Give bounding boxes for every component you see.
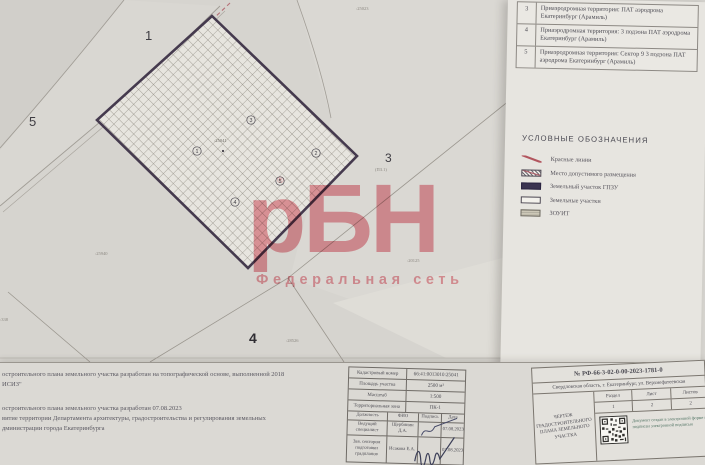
note-line: витие территории Департамента архитектур… (2, 414, 344, 424)
cadastral-label: (ПЗ.1) (375, 167, 387, 172)
region-number: 3 (385, 151, 392, 165)
zouit-box-icon (520, 210, 540, 217)
drawing-title-cell: ЧЕРТЕЖ ГРАДОСТРОИТЕЛЬНОГО ПЛАНА ЗЕМЕЛЬНО… (533, 392, 597, 464)
table-row: 3 Приаэродромная территория: ПАТ аэродро… (517, 2, 697, 27)
map-drawing: 1 5 3 4 3 1 2 5 4 :25041 :25023 (ПЗ.1) :… (0, 0, 510, 362)
red-line-icon (522, 156, 542, 163)
note-line: дминистрации города Екатеринбурга (2, 424, 344, 434)
legend-label: Красные линии (551, 156, 592, 164)
grid-value: 2 (672, 398, 705, 410)
vertex-number: 3 (250, 118, 253, 124)
position-cell: Зав. сектором подготовки градпланов (347, 435, 388, 462)
zone-number: 4 (517, 24, 536, 45)
note-line: остроительного плана земельного участка … (2, 404, 344, 414)
plan-notes: остроительного плана земельного участка … (2, 370, 344, 434)
zone-description: Приаэродромная территория: Сектор 9 3 по… (536, 46, 697, 70)
field-value: 1:500 (406, 391, 464, 403)
table-row: 5 Приаэродромная территория: Сектор 9 3 … (517, 45, 697, 71)
cadastral-label: :20125 (407, 258, 420, 263)
document-stamp-table: № РФ-66-3-02-0-00-2023-1781-0 Свердловск… (531, 360, 705, 465)
zone-description: Приаэродромная территория: ПАТ аэродрома… (536, 3, 697, 27)
region-number: 1 (145, 28, 152, 43)
legend: УСЛОВНЫЕ ОБОЗНАЧЕНИЯ Красные линии Место… (520, 133, 698, 223)
sign-row: Зав. сектором подготовки градпланов Исак… (347, 435, 464, 464)
date-cell: 07.08.2023 (441, 423, 464, 438)
legend-label: Земельный участок ГПЗУ (550, 183, 618, 191)
cadastral-label: :338 (0, 317, 9, 322)
title-block-table: Кадастровый номер 66:41:0013010:25041 Пл… (346, 366, 467, 465)
zone-number: 5 (517, 46, 536, 67)
cadastral-label: :25023 (356, 6, 369, 11)
name-cell: Щербинин Д.А. (387, 421, 418, 436)
legend-label: ЗОУИТ (549, 210, 569, 217)
signature-cell (418, 437, 442, 464)
legend-item: ЗОУИТ (520, 206, 696, 223)
scanned-land-plan: 1 5 3 4 3 1 2 5 4 :25041 :25023 (ПЗ.1) :… (0, 0, 705, 465)
field-label: Площадь участка (349, 378, 407, 390)
zone-description: Приаэродромная территория: 3 подзона ПАТ… (536, 24, 697, 48)
dark-box-icon (521, 183, 541, 190)
field-label: Масштаб (348, 389, 406, 401)
field-value: 2500 м² (407, 380, 465, 392)
hatched-box-icon (521, 169, 541, 176)
column-header: Дата (442, 414, 464, 423)
parcel-cadastral-label: :25041 (214, 138, 227, 143)
grid-value: 2 (633, 399, 672, 411)
column-header: Подпись (419, 413, 442, 422)
column-header: Должность (348, 411, 388, 420)
vertex-number: 5 (279, 179, 282, 185)
note-line: остроительного плана земельного участка … (2, 370, 344, 380)
parcel-point (222, 150, 224, 152)
zone-number: 3 (517, 2, 536, 23)
cadastral-label: :25940 (95, 251, 108, 256)
column-header: ФИО (388, 412, 419, 421)
vertex-number: 2 (315, 151, 318, 157)
qr-stamp-icon (599, 415, 628, 444)
legend-label: Место допустимого размещения (550, 170, 636, 179)
region-number: 5 (29, 114, 36, 129)
drawing-title: ЧЕРТЕЖ ГРАДОСТРОИТЕЛЬНОГО ПЛАНА ЗЕМЕЛЬНО… (535, 411, 594, 445)
date-cell: 07.08.2023 (441, 438, 465, 465)
field-label: Территориальная зона (348, 400, 406, 412)
region-number: 4 (249, 330, 257, 346)
outline-box-icon (521, 196, 541, 203)
electronic-signature-note: Документ создан в электронной форме и по… (632, 412, 705, 457)
signature-cell (418, 422, 441, 437)
table-row: 4 Приаэродромная территория: 3 подзона П… (517, 23, 697, 49)
note-line: ИСИЗ" (2, 380, 344, 390)
title-block-band: остроительного плана земельного участка … (0, 362, 705, 465)
zones-table: 3 Приаэродромная территория: ПАТ аэродро… (516, 1, 699, 71)
position-cell: Ведущий специалист (347, 420, 387, 435)
grid-value: 1 (594, 401, 633, 413)
legend-sheet: 3 Приаэродромная территория: ПАТ аэродро… (500, 0, 705, 370)
column-header: Лист (633, 388, 672, 400)
field-label: Кадастровый номер (349, 367, 407, 379)
vertex-number: 4 (234, 200, 237, 206)
legend-title: УСЛОВНЫЕ ОБОЗНАЧЕНИЯ (522, 133, 698, 146)
name-cell: Исакова Е.А. (387, 436, 419, 463)
cadastral-label: :28526 (286, 338, 299, 343)
column-header: Раздел (594, 390, 633, 402)
column-header: Листов (671, 387, 705, 399)
vertex-number: 1 (196, 149, 199, 155)
field-value: ПК-1 (406, 402, 464, 414)
field-value: 66:41:0013010:25041 (407, 369, 465, 381)
legend-label: Земельные участки (550, 197, 601, 205)
